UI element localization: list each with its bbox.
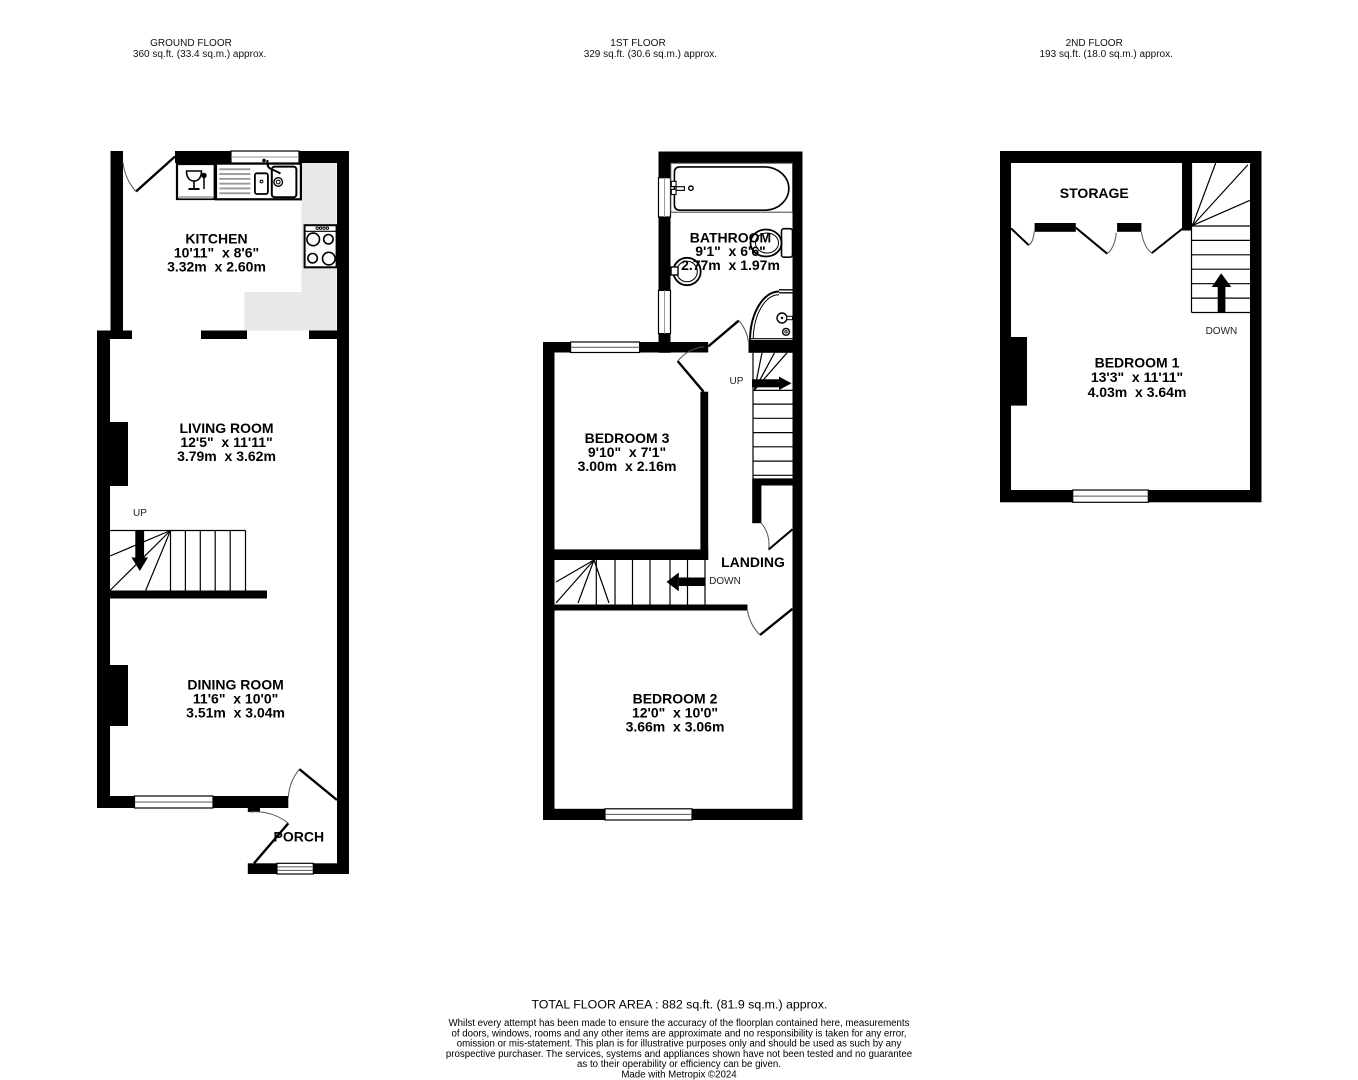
svg-text:3.00m x 2.16m: 3.00m x 2.16m <box>578 458 677 474</box>
svg-text:2.77m x 1.97m: 2.77m x 1.97m <box>681 257 780 273</box>
svg-text:13'3" x 11'11": 13'3" x 11'11" <box>1091 369 1183 385</box>
svg-text:193 sq.ft. (18.0 sq.m.) approx: 193 sq.ft. (18.0 sq.m.) approx. <box>1039 49 1172 60</box>
svg-text:TOTAL FLOOR AREA : 882 sq.ft.: TOTAL FLOOR AREA : 882 sq.ft. (81.9 sq.m… <box>531 997 827 1011</box>
svg-text:3.51m x 3.04m: 3.51m x 3.04m <box>186 705 285 721</box>
svg-text:UP: UP <box>133 508 147 519</box>
svg-text:1ST FLOOR: 1ST FLOOR <box>610 38 665 49</box>
svg-text:3.79m x 3.62m: 3.79m x 3.62m <box>177 448 276 464</box>
svg-text:DOWN: DOWN <box>709 576 741 587</box>
svg-text:GROUND FLOOR: GROUND FLOOR <box>150 38 232 49</box>
svg-text:4.03m x 3.64m: 4.03m x 3.64m <box>1088 384 1187 400</box>
svg-text:PORCH: PORCH <box>274 829 325 845</box>
svg-text:360 sq.ft. (33.4 sq.m.) approx: 360 sq.ft. (33.4 sq.m.) approx. <box>133 49 266 60</box>
svg-text:2ND FLOOR: 2ND FLOOR <box>1066 38 1123 49</box>
svg-text:DOWN: DOWN <box>1206 326 1238 337</box>
svg-text:LANDING: LANDING <box>721 554 785 570</box>
svg-text:3.66m x 3.06m: 3.66m x 3.06m <box>626 719 725 735</box>
svg-text:STORAGE: STORAGE <box>1060 185 1129 201</box>
svg-text:3.32m x 2.60m: 3.32m x 2.60m <box>167 259 266 275</box>
svg-text:UP: UP <box>730 376 744 387</box>
svg-text:Made with Metropix ©2024: Made with Metropix ©2024 <box>621 1070 737 1080</box>
svg-text:329 sq.ft. (30.6 sq.m.) approx: 329 sq.ft. (30.6 sq.m.) approx. <box>584 49 717 60</box>
